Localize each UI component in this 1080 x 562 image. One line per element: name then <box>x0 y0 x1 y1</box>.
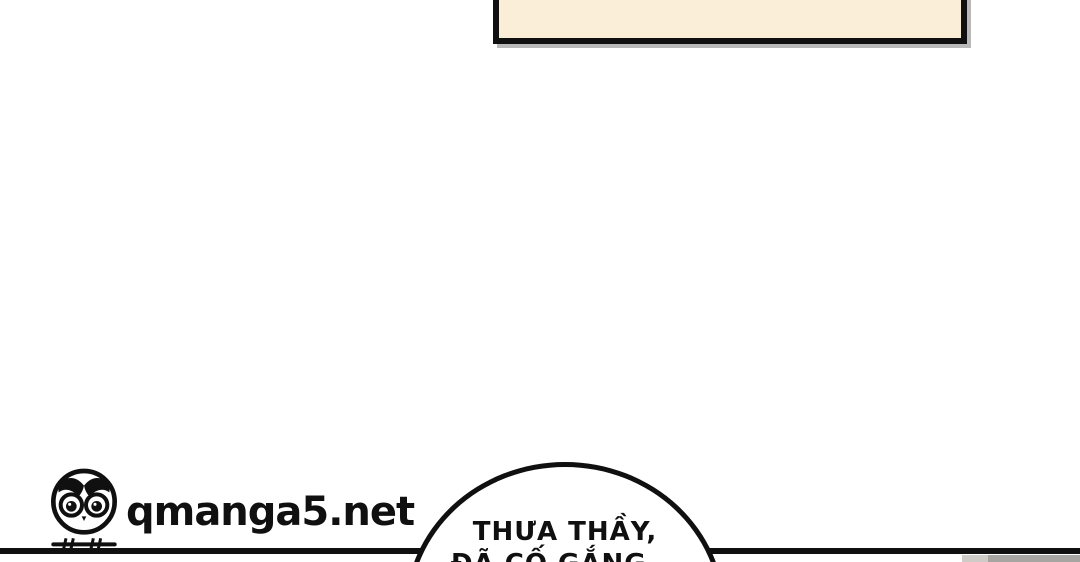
speech-bubble-line1: THƯA THẦY, <box>410 517 720 547</box>
owl-logo-icon <box>44 463 124 555</box>
caption-box <box>493 0 967 44</box>
watermark: qmanga5.net <box>44 463 414 555</box>
speech-bubble-text: THƯA THẦY, ĐÃ CỐ GẮNG... <box>410 517 720 562</box>
watermark-site-name: qmanga5.net <box>126 489 414 535</box>
speech-bubble: THƯA THẦY, ĐÃ CỐ GẮNG... <box>405 462 725 562</box>
next-panel-edge <box>962 555 1080 562</box>
manga-page: qmanga5.net THƯA THẦY, ĐÃ CỐ GẮNG... <box>0 0 1080 562</box>
next-panel-light-strip <box>962 555 988 562</box>
speech-bubble-line2: ĐÃ CỐ GẮNG... <box>410 549 720 562</box>
